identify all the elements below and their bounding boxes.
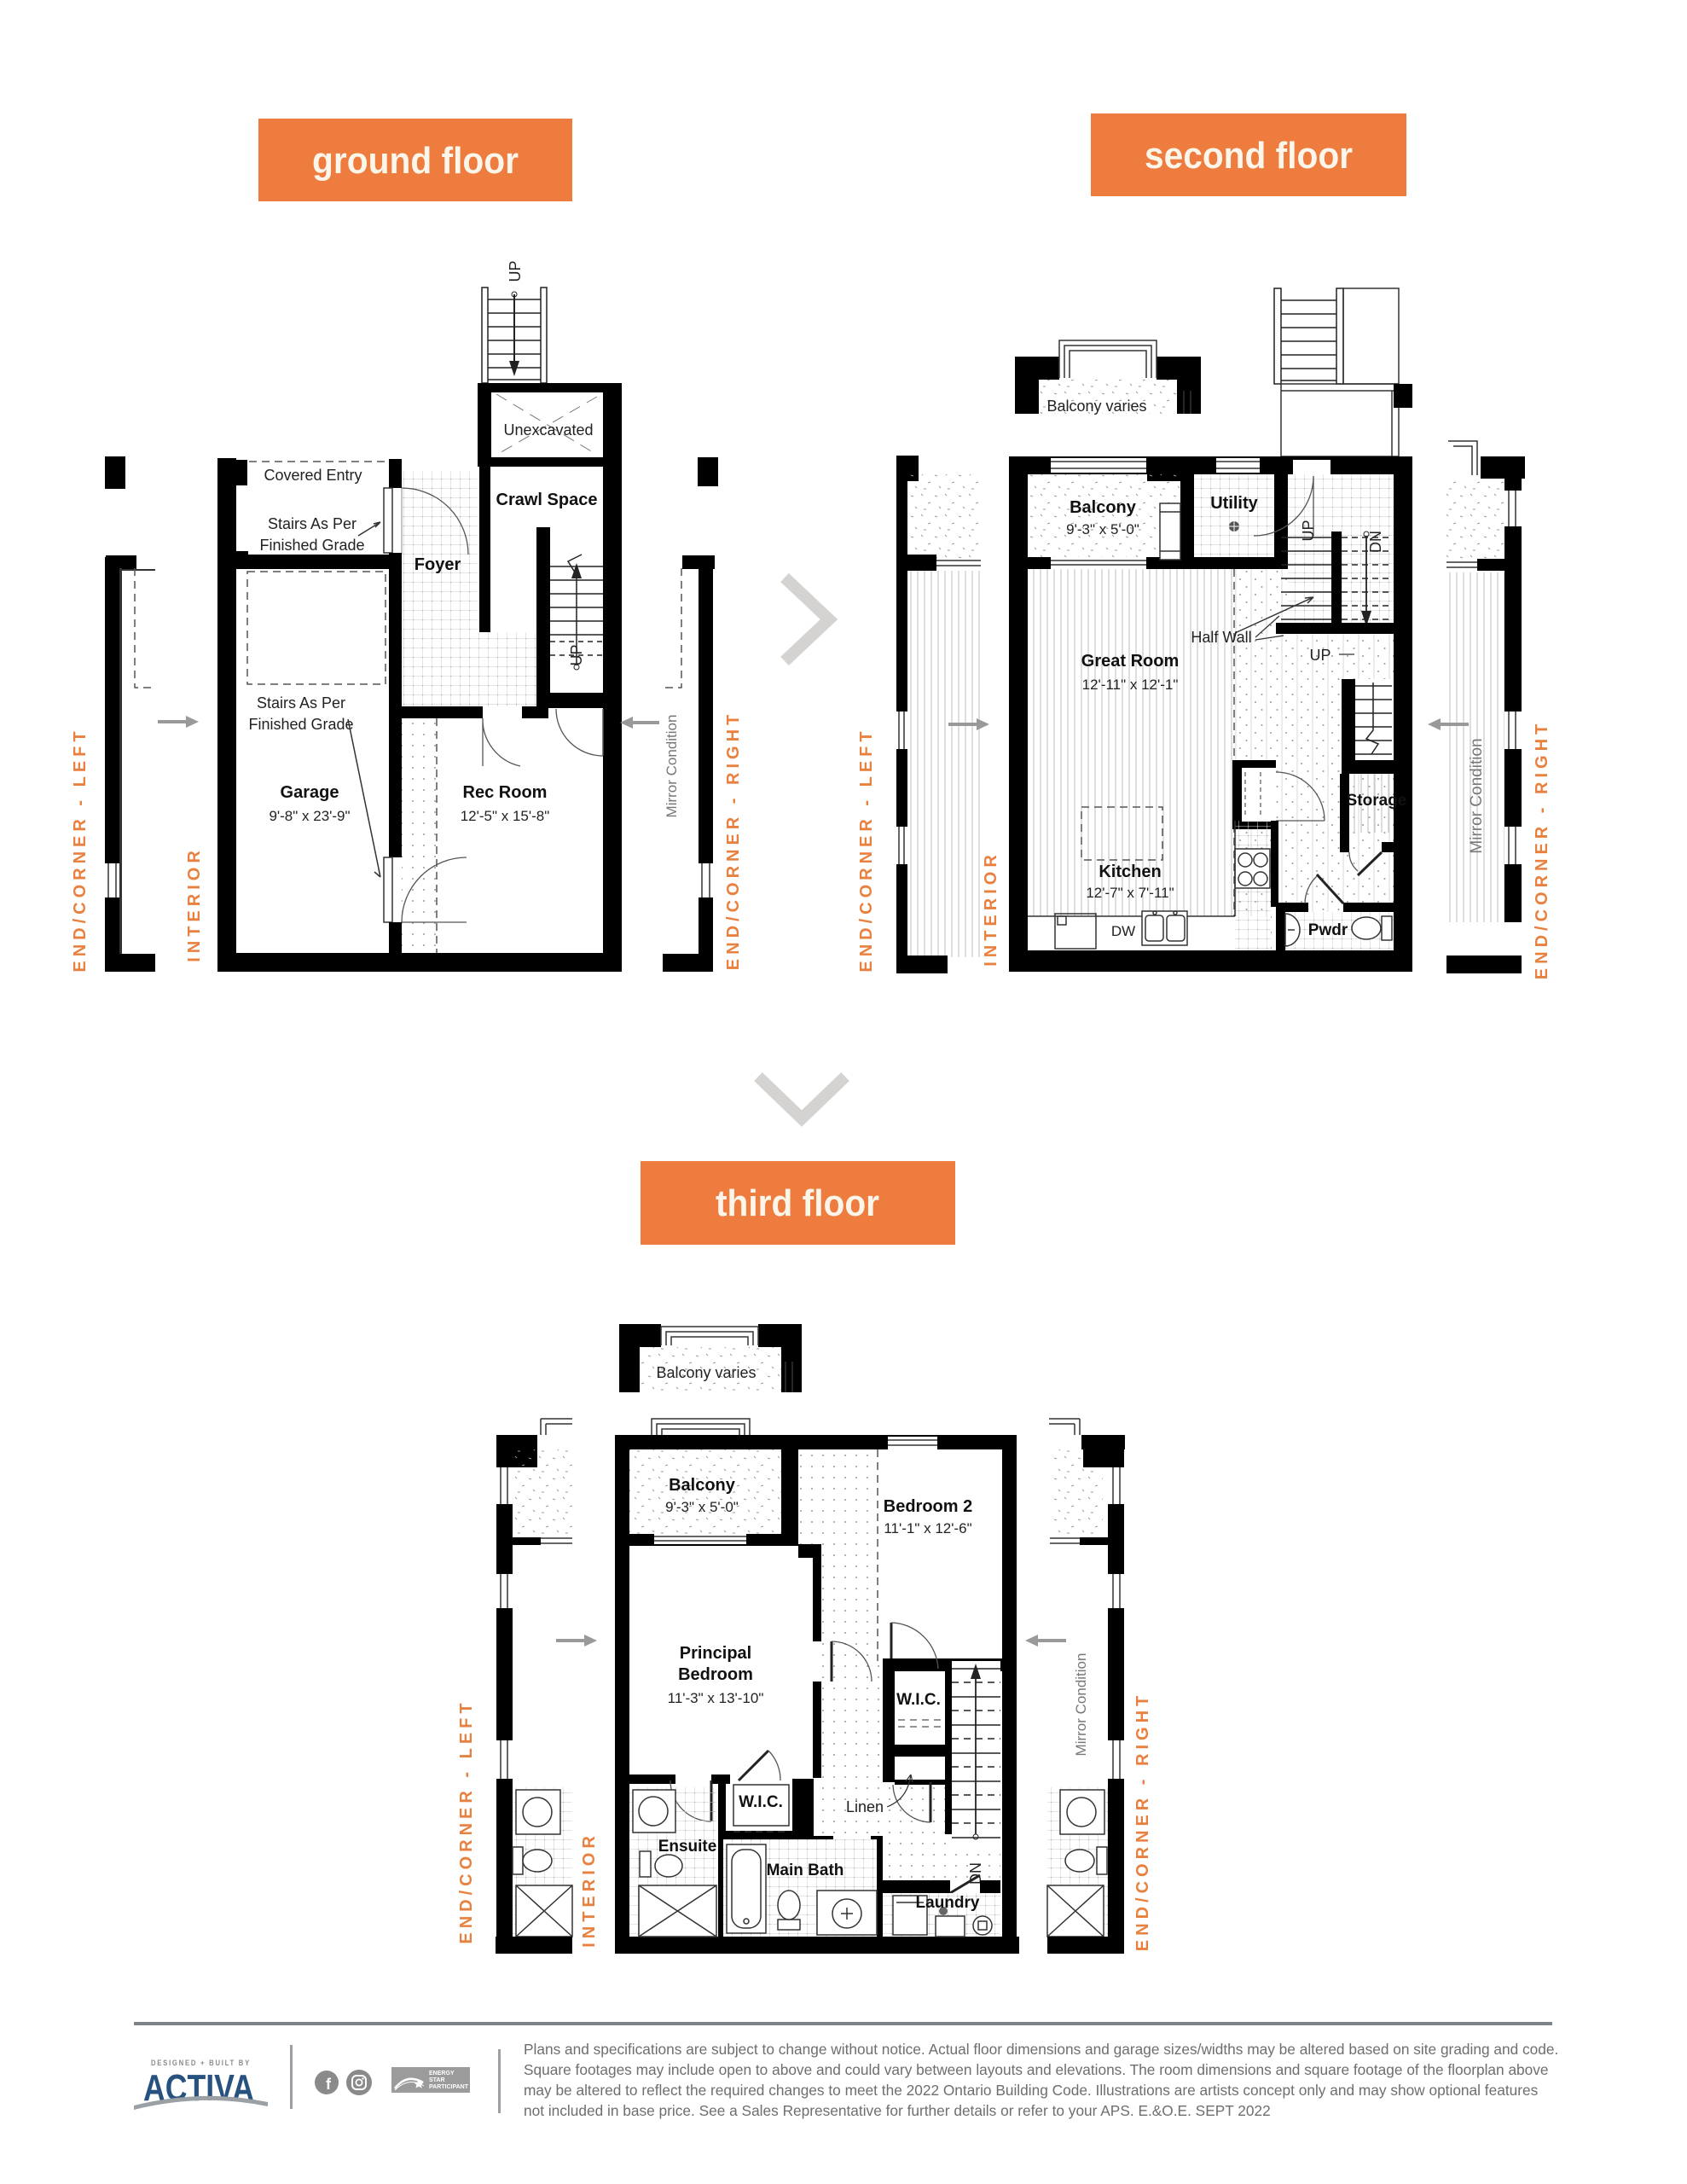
svg-text:Bedroom: Bedroom (678, 1665, 753, 1684)
svg-text:DW: DW (1111, 923, 1135, 939)
svg-text:Garage: Garage (281, 783, 339, 802)
svg-text:Stairs As Per: Stairs As Per (268, 515, 357, 532)
svg-text:UP: UP (1309, 647, 1330, 664)
svg-text:END/CORNER - RIGHT: END/CORNER - RIGHT (1533, 720, 1551, 979)
svg-text:Mirror Condition: Mirror Condition (1468, 738, 1486, 853)
svg-text:Main Bath: Main Bath (767, 1862, 844, 1879)
svg-text:INTERIOR: INTERIOR (580, 1832, 599, 1948)
svg-text:9'-3" x 5'-0": 9'-3" x 5'-0" (665, 1499, 739, 1515)
svg-text:f: f (326, 2076, 332, 2093)
svg-text:Mirror Condition: Mirror Condition (664, 715, 680, 818)
svg-text:12'-11" x 12'-1": 12'-11" x 12'-1" (1082, 677, 1179, 693)
svg-text:W.I.C.: W.I.C. (896, 1691, 941, 1709)
svg-text:may be altered to reflect the: may be altered to reflect the required c… (524, 2082, 1539, 2099)
svg-text:UP: UP (1300, 520, 1317, 541)
svg-text:third floor: third floor (716, 1182, 879, 1224)
svg-text:ground floor: ground floor (312, 140, 519, 182)
svg-text:DESIGNED + BUILT BY: DESIGNED + BUILT BY (151, 2059, 251, 2067)
svg-text:Finished Grade: Finished Grade (259, 537, 364, 554)
svg-text:END/CORNER - LEFT: END/CORNER - LEFT (457, 1699, 476, 1943)
svg-text:INTERIOR: INTERIOR (982, 851, 1000, 967)
svg-text:ENERGY: ENERGY (429, 2071, 455, 2077)
svg-text:12'-5" x 15'-8": 12'-5" x 15'-8" (461, 808, 550, 824)
svg-text:UP: UP (507, 260, 524, 282)
svg-text:9'-3" x 5'-0": 9'-3" x 5'-0" (1066, 521, 1139, 537)
svg-text:second floor: second floor (1145, 135, 1353, 177)
svg-text:DN: DN (1367, 531, 1384, 553)
svg-text:Principal: Principal (680, 1644, 751, 1663)
svg-text:Pwdr: Pwdr (1308, 921, 1348, 939)
svg-text:Linen: Linen (846, 1798, 884, 1815)
svg-text:Balcony: Balcony (1070, 498, 1137, 517)
svg-text:W.I.C.: W.I.C. (739, 1793, 783, 1811)
svg-text:PARTICIPANT: PARTICIPANT (429, 2084, 469, 2090)
svg-text:Balcony: Balcony (669, 1476, 736, 1495)
svg-text:Utility: Utility (1210, 494, 1258, 513)
svg-text:Finished Grade: Finished Grade (248, 716, 353, 733)
svg-text:END/CORNER - LEFT: END/CORNER - LEFT (71, 727, 90, 972)
svg-text:11'-1" x 12'-6": 11'-1" x 12'-6" (884, 1520, 971, 1536)
svg-text:Rec Room: Rec Room (463, 783, 548, 802)
svg-text:Bedroom 2: Bedroom 2 (884, 1497, 972, 1516)
svg-text:Mirror Condition: Mirror Condition (1073, 1653, 1089, 1757)
svg-text:Balcony varies: Balcony varies (1046, 398, 1146, 415)
svg-text:Unexcavated: Unexcavated (503, 421, 593, 439)
svg-text:Stairs As Per: Stairs As Per (257, 694, 345, 712)
svg-text:INTERIOR: INTERIOR (185, 846, 204, 962)
svg-text:UP: UP (568, 644, 585, 665)
svg-text:Balcony varies: Balcony varies (656, 1364, 756, 1381)
svg-text:Half Wall: Half Wall (1191, 629, 1251, 646)
svg-text:Storage: Storage (1347, 792, 1407, 810)
svg-text:END/CORNER - RIGHT: END/CORNER - RIGHT (724, 711, 743, 970)
svg-text:STAR: STAR (429, 2077, 445, 2083)
svg-text:Foyer: Foyer (415, 555, 461, 574)
svg-text:Crawl Space: Crawl Space (496, 491, 598, 509)
svg-text:END/CORNER - LEFT: END/CORNER - LEFT (857, 727, 876, 972)
svg-text:not included in base price. Se: not included in base price. See a Sales … (524, 2102, 1271, 2119)
svg-text:11'-3" x 13'-10": 11'-3" x 13'-10" (668, 1690, 764, 1706)
svg-text:Ensuite: Ensuite (658, 1838, 717, 1856)
svg-text:Plans and specifications are s: Plans and specifications are subject to … (524, 2041, 1558, 2058)
svg-text:Kitchen: Kitchen (1099, 863, 1161, 881)
svg-text:Covered Entry: Covered Entry (264, 467, 362, 484)
svg-text:END/CORNER - RIGHT: END/CORNER - RIGHT (1133, 1692, 1152, 1951)
svg-text:Laundry: Laundry (916, 1894, 980, 1912)
svg-text:9'-8" x 23'-9": 9'-8" x 23'-9" (269, 808, 350, 824)
svg-text:Square footages may include op: Square footages may include open to abov… (524, 2061, 1549, 2078)
svg-text:Great Room: Great Room (1081, 652, 1179, 671)
svg-text:12'-7" x 7'-11": 12'-7" x 7'-11" (1086, 885, 1174, 901)
